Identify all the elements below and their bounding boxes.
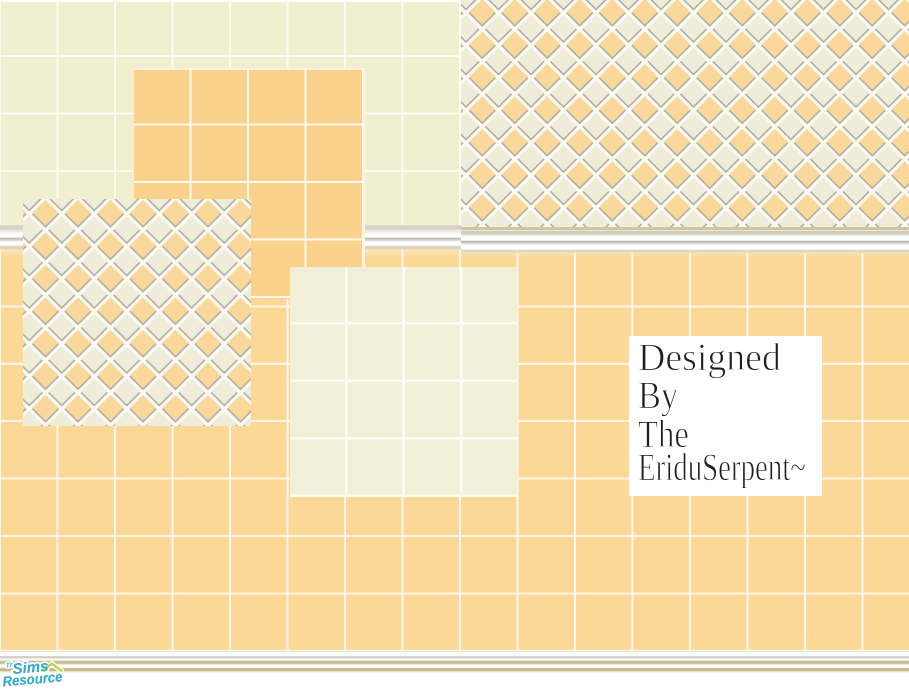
- svg-text:Resource: Resource: [2, 668, 63, 689]
